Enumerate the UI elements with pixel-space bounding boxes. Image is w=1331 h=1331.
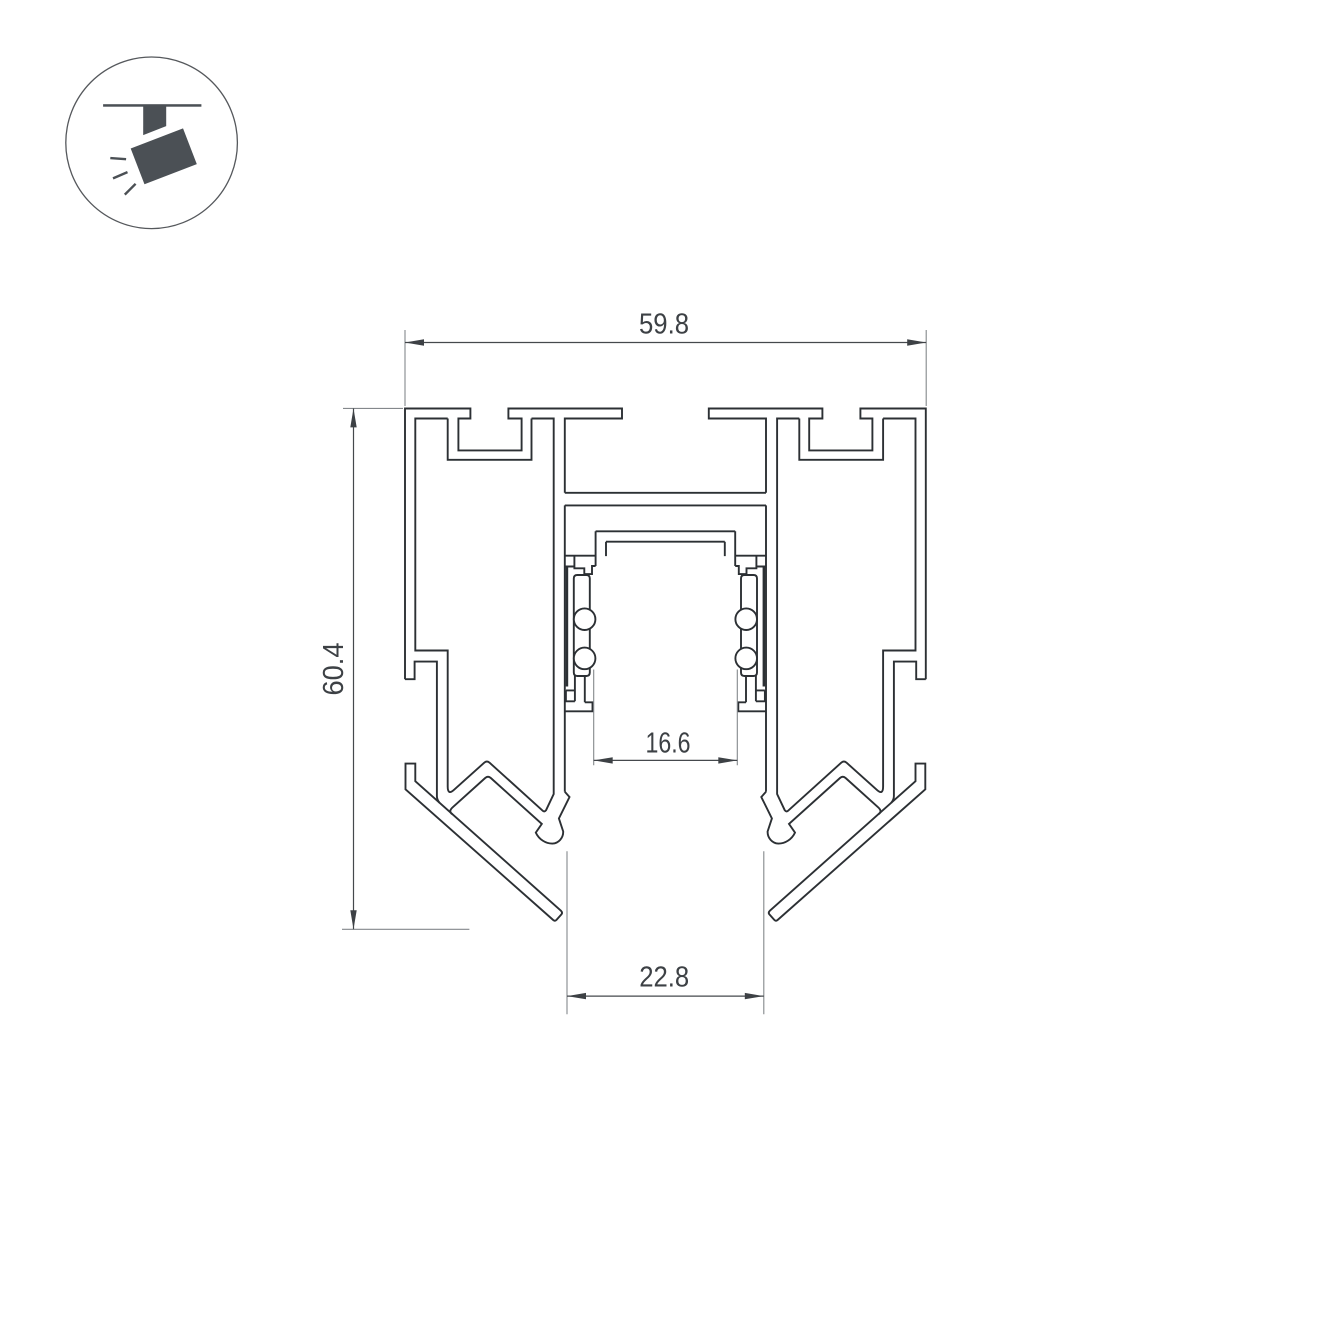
svg-text:59.8: 59.8 [639, 309, 689, 341]
svg-text:60.4: 60.4 [318, 642, 350, 695]
svg-text:22.8: 22.8 [639, 961, 689, 993]
svg-text:16.6: 16.6 [646, 728, 691, 760]
